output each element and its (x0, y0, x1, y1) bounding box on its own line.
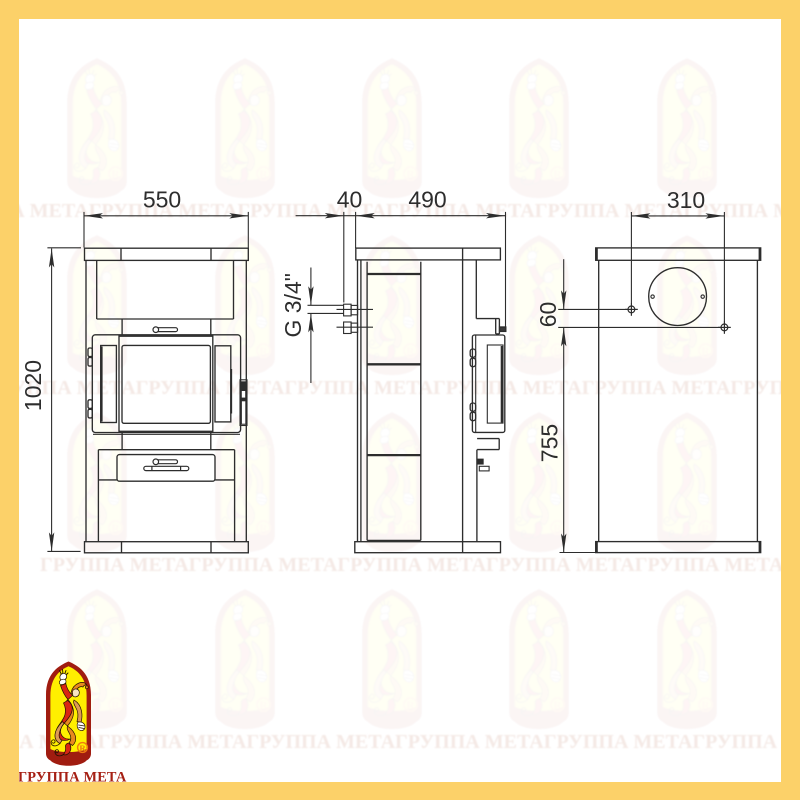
svg-text:G 3/4": G 3/4" (280, 273, 306, 337)
svg-text:490: 490 (408, 187, 446, 213)
svg-text:60: 60 (535, 302, 561, 328)
svg-text:1020: 1020 (20, 360, 46, 411)
svg-text:310: 310 (667, 187, 705, 213)
svg-text:40: 40 (337, 187, 363, 213)
svg-text:550: 550 (143, 187, 181, 213)
svg-text:755: 755 (537, 424, 563, 462)
